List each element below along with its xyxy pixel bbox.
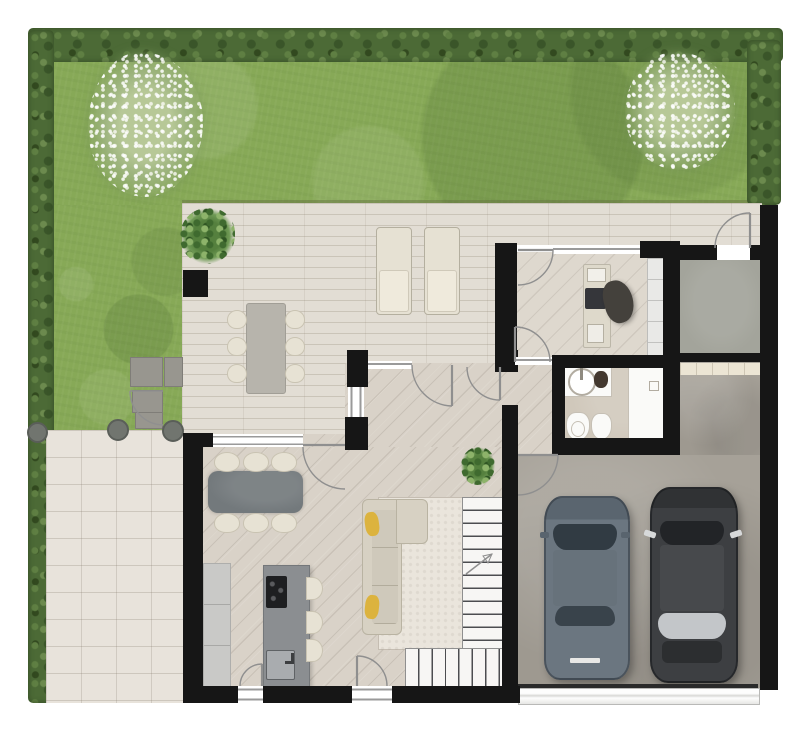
outdoor-chair bbox=[285, 364, 305, 383]
walkway bbox=[46, 430, 183, 703]
window-bottom-living bbox=[352, 686, 392, 703]
sun-lounger bbox=[376, 227, 412, 315]
garage-shelf-strip bbox=[680, 363, 760, 375]
window-office-bottom bbox=[515, 357, 552, 365]
wall-office-right bbox=[663, 241, 680, 455]
desk-paper bbox=[587, 268, 606, 282]
desk-item bbox=[587, 324, 604, 343]
lounger-cushion bbox=[427, 270, 457, 312]
stepping-stone bbox=[132, 390, 163, 413]
flowering-bush-right bbox=[625, 52, 735, 170]
bollard bbox=[27, 422, 48, 443]
dining-chair bbox=[243, 513, 269, 533]
patio-top-strip bbox=[182, 203, 762, 245]
sofa-chaise bbox=[396, 499, 428, 544]
car-gray bbox=[544, 496, 630, 680]
floor-plan-canvas bbox=[0, 0, 810, 735]
window-hall-pillar bbox=[348, 387, 364, 417]
outdoor-chair bbox=[227, 364, 247, 383]
car-trunk bbox=[662, 641, 722, 663]
staircase-lower-flight bbox=[405, 648, 504, 688]
dining-table bbox=[208, 471, 303, 513]
car-mirror bbox=[540, 532, 549, 538]
toilet-bowl bbox=[571, 421, 585, 437]
wall-office-top-post bbox=[640, 241, 680, 258]
hedge-right bbox=[747, 40, 781, 205]
hallway-floor bbox=[345, 363, 552, 455]
garage-door bbox=[518, 688, 760, 705]
sun-lounger bbox=[424, 227, 460, 315]
stepping-stone bbox=[164, 357, 183, 387]
car-windshield bbox=[660, 521, 724, 545]
garage-floor-upper bbox=[680, 362, 762, 455]
car-windshield bbox=[553, 524, 617, 550]
faucet-icon bbox=[291, 653, 294, 664]
shower-drain bbox=[649, 381, 659, 391]
doorway-floor-patch bbox=[303, 434, 345, 447]
dining-chair bbox=[271, 452, 297, 472]
wall-right-exterior bbox=[760, 205, 778, 690]
outdoor-chair bbox=[285, 310, 305, 329]
shower bbox=[628, 366, 665, 442]
outdoor-chair bbox=[285, 337, 305, 356]
staircase-upper-flight bbox=[462, 497, 504, 651]
window-office-top bbox=[553, 246, 640, 254]
wall-office-bath bbox=[552, 355, 663, 368]
kitchen-wall-counter bbox=[203, 563, 231, 688]
car-mirror bbox=[621, 532, 630, 538]
wall-bath-bottom bbox=[552, 438, 680, 455]
toilet bbox=[566, 412, 590, 441]
outdoor-chair bbox=[227, 337, 247, 356]
storage-room-floor bbox=[680, 260, 762, 353]
bollard bbox=[107, 419, 129, 441]
wall-dining-top bbox=[183, 433, 213, 447]
dining-chair bbox=[271, 513, 297, 533]
window-hall-top bbox=[368, 361, 412, 369]
dining-chair bbox=[214, 452, 240, 472]
wall-left-exterior bbox=[183, 433, 203, 703]
bollard bbox=[162, 420, 184, 442]
wall-stub-hall bbox=[345, 417, 368, 450]
car-roof bbox=[553, 550, 617, 606]
vanity-sink bbox=[568, 368, 596, 396]
car-plate bbox=[570, 658, 600, 663]
wall-office-left bbox=[495, 243, 517, 367]
window-bottom-kitchen bbox=[238, 686, 263, 703]
car-rear-window bbox=[555, 606, 615, 626]
wall-patio-pillar bbox=[347, 350, 368, 387]
kitchen-sink bbox=[266, 650, 295, 680]
wall-storage-top-a bbox=[680, 245, 717, 260]
flowering-bush-left bbox=[88, 52, 203, 197]
faucet-icon bbox=[580, 368, 583, 380]
car-dark bbox=[650, 487, 738, 683]
lounger-cushion bbox=[379, 270, 409, 312]
vanity-accessory bbox=[594, 371, 608, 388]
car-rear-band bbox=[658, 613, 726, 639]
bidet bbox=[591, 413, 612, 440]
stepping-stone bbox=[135, 412, 163, 429]
dining-chair bbox=[214, 513, 240, 533]
wall-garage-left bbox=[502, 405, 518, 686]
outdoor-dining-table bbox=[246, 303, 286, 394]
wall-bath-left bbox=[552, 360, 565, 440]
window-dining bbox=[213, 434, 303, 447]
wall-patio-post bbox=[183, 270, 208, 297]
stepping-stone bbox=[130, 357, 163, 387]
dining-chair bbox=[243, 452, 269, 472]
car-roof bbox=[660, 545, 724, 611]
cooktop bbox=[266, 576, 287, 608]
outdoor-chair bbox=[227, 310, 247, 329]
wall-storage-bottom bbox=[663, 353, 763, 362]
